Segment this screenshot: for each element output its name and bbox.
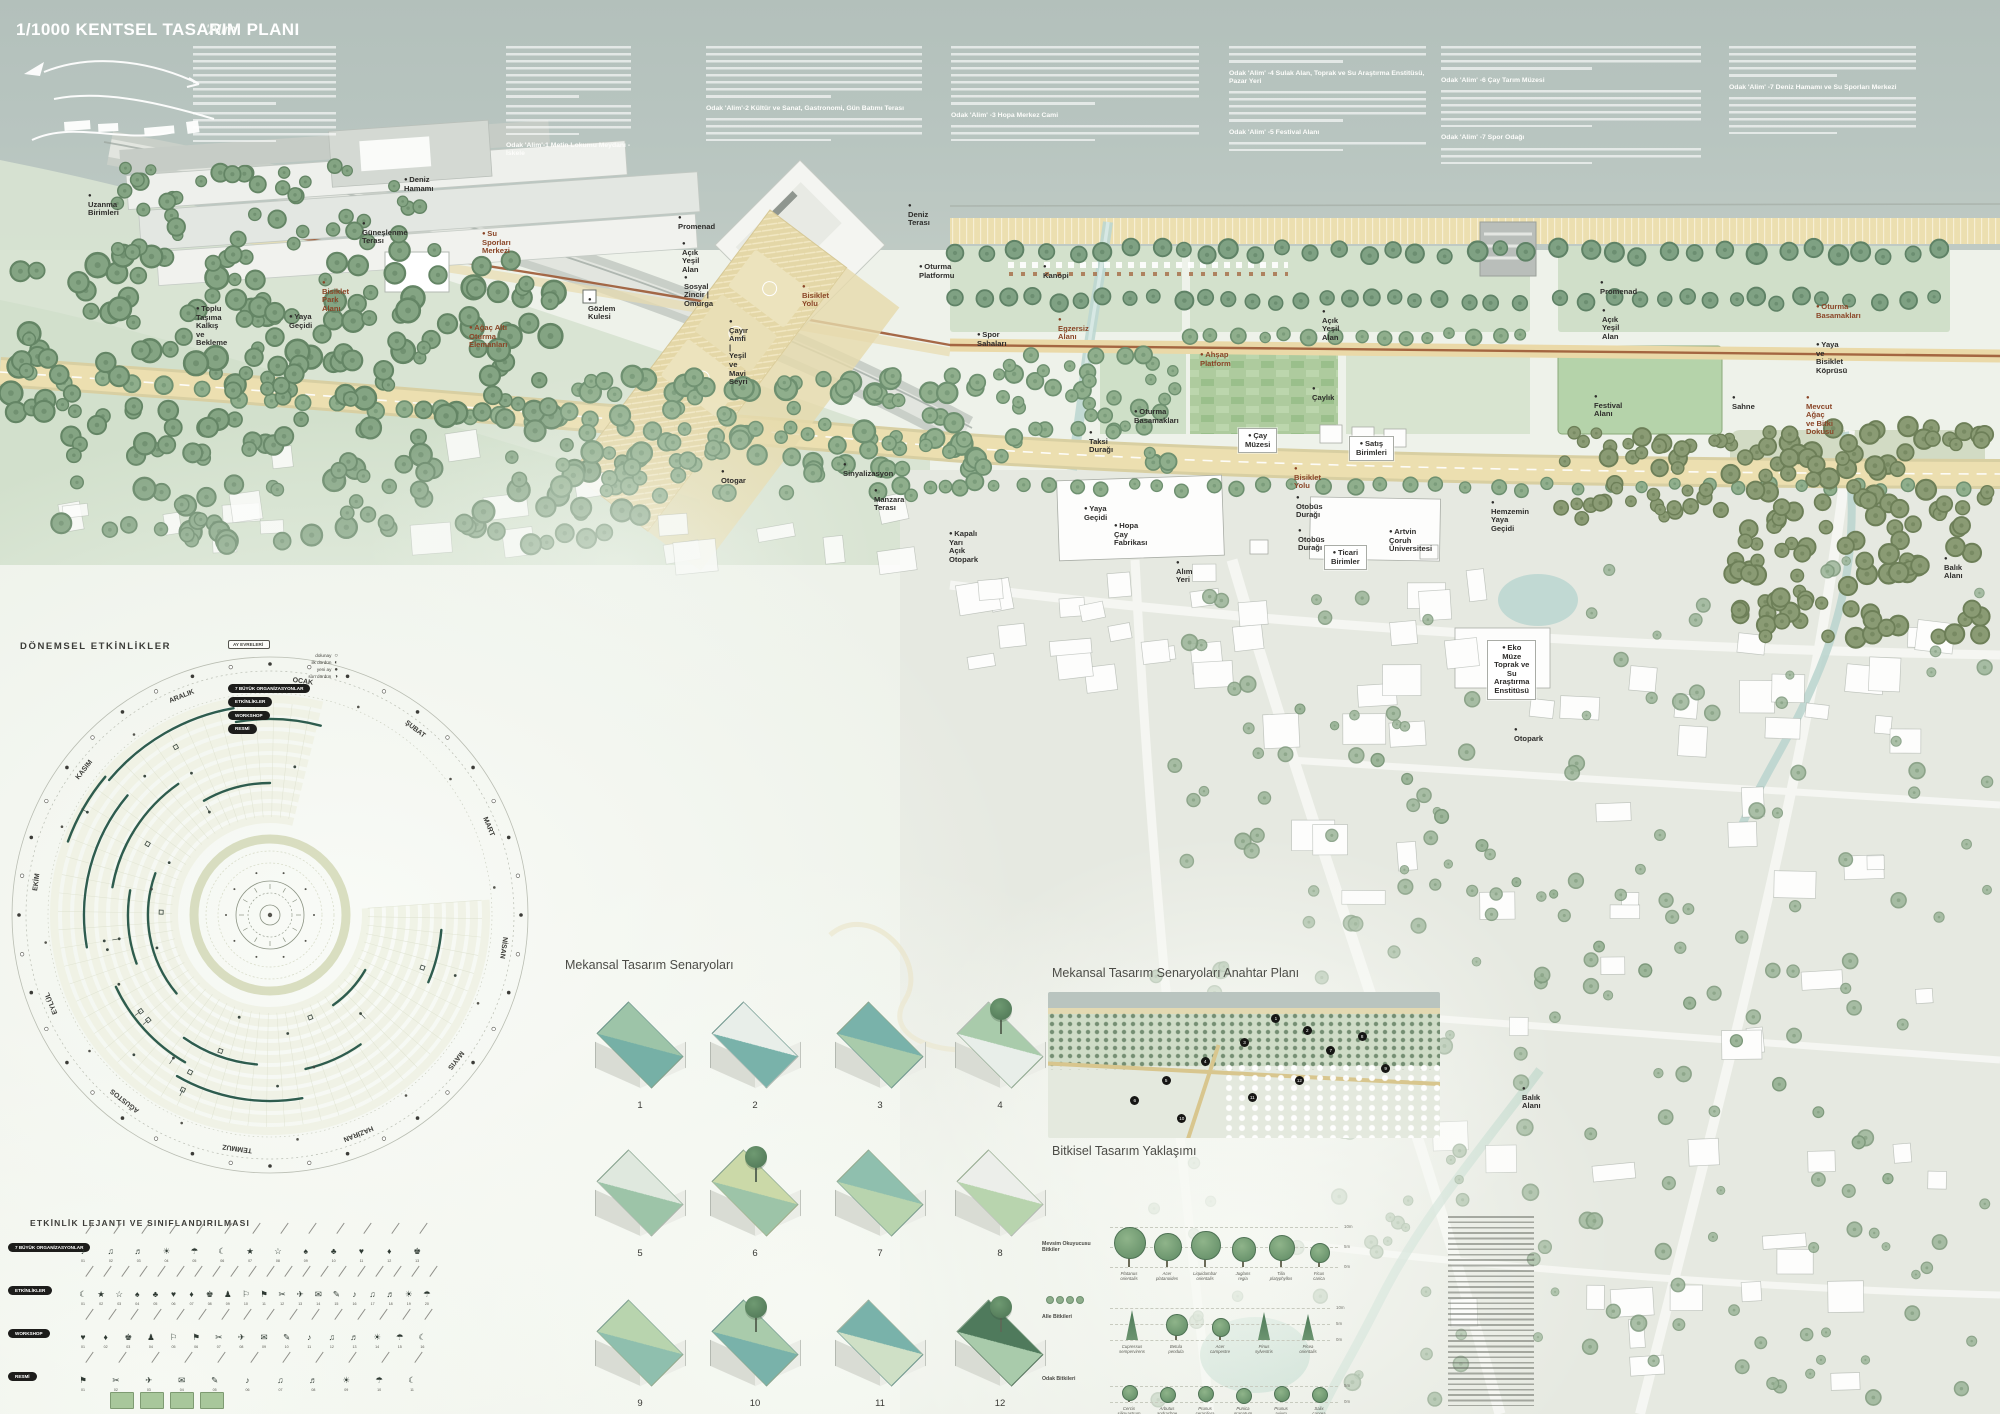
intro-column: Odak 'Alim' -3 Hopa Merkez Cami [951,46,1199,148]
legend-item-icon: ☀04 [158,1235,176,1263]
map-label: ● Yaya Geçidi [1084,505,1107,522]
legend-item-icon: ☀09 [337,1364,355,1392]
map-label: ● Otogar [721,468,746,485]
legend-item-icon: ☂05 [185,1235,203,1263]
legend-item-icon: ✉14 [309,1278,327,1306]
legend-item-icon: ♠09 [297,1235,315,1263]
scenario-number: 5 [582,1248,698,1259]
map-label: ● Çay Müzesi [1238,428,1277,453]
legend-item-icon: ✎10 [278,1321,296,1349]
map-label: ● Oturma Basamakları [1134,408,1179,425]
scenario-number: 2 [697,1100,813,1111]
scenario-number: 11 [822,1398,938,1409]
legend-row: ETKİNLİKLER☾01★02☆03♠04♣05♥06♦07♚08♟09⚐1… [8,1274,438,1314]
species-name: Salixcaprea [1299,1406,1339,1414]
legend-item-icon: ☾01 [74,1278,92,1306]
height-scale-label: 5m [1344,1383,1350,1388]
allee-icon [1046,1296,1084,1304]
species-name: Juglansregia [1223,1271,1263,1281]
legend-item-icon: ♬08 [304,1364,322,1392]
svg-text:NİSAN: NİSAN [498,937,509,960]
legend-item-icon: ✈03 [140,1364,158,1392]
legend-item-icon: ♥11 [352,1235,370,1263]
species-name: Prunusavium [1261,1406,1301,1414]
odak-heading: Odak 'Alim'-2 Kültür ve Sanat, Gastronom… [706,105,922,113]
map-label: ● Bisiklet Yolu [802,283,829,309]
moon-legend-item: dolunay○ [228,652,338,659]
odak-heading: Odak 'Alim' -7 Spor Odağı [1441,134,1701,142]
svg-text:ŞUBAT: ŞUBAT [404,719,427,739]
map-label: ● Açık Yeşil Alan [1322,308,1339,342]
species-tree-icon [1274,1386,1290,1402]
legend-row-category: WORKSHOP [8,1329,50,1338]
odak-heading: Odak 'Alim'-1 Metin Lokumu Meydanı - İsk… [506,142,631,158]
height-scale-label: 5m [1344,1244,1350,1249]
map-label: ● Otobüs Durağı [1296,494,1323,520]
species-tree-icon [1154,1233,1182,1261]
legend-item-icon: ♦12 [380,1235,398,1263]
species-name: Platanusorientalis [1109,1271,1149,1281]
keyplan-map: 123456789101112 [1048,992,1440,1138]
species-tree-icon [1269,1235,1295,1261]
map-label: ● Su Sporları Merkezi [482,230,511,256]
map-label: ● Festival Alanı [1594,393,1622,419]
map-label: ● Taksi Durağı [1089,429,1113,455]
legend-item-icon: ☾06 [213,1235,231,1263]
species-name: Prunusceracifera [1185,1406,1225,1414]
scenario-tile: 1 [582,996,698,1114]
keyplan-marker: 12 [1295,1076,1304,1085]
scenario-number: 3 [822,1100,938,1111]
scenario-tile: 6 [697,1144,813,1262]
intro-column: Odak 'Alim'-2 Kültür ve Sanat, Gastronom… [706,46,922,148]
svg-text:TEMMUZ: TEMMUZ [221,1143,252,1154]
legend-item-icon: ✎05 [206,1364,224,1392]
map-label: ● Otopark [1514,726,1543,743]
keyplan-marker: 11 [1248,1093,1257,1102]
scenario-number: 1 [582,1100,698,1111]
map-label: ● Promenad [678,214,715,231]
species-name: Cercissiliquastrum [1109,1406,1149,1414]
legend-item-icon: ♥01 [74,1321,92,1349]
map-label: ● Balık Alanı [1522,1085,1541,1111]
legend-item-icon: ♪01 [74,1235,92,1263]
poster-title: 1/1000 KENTSEL TASARIM PLANI [16,20,300,40]
keyplan-marker: 2 [1303,1026,1312,1035]
scenario-tile: 10 [697,1294,813,1412]
species-name: Acercampestre [1200,1344,1240,1354]
legend-item-icon: ♪06 [239,1364,257,1392]
height-scale-label: 0m [1344,1264,1350,1269]
planting-group-label: Odak Bitkileri [1042,1376,1106,1382]
planting-palette: Mevsim Okuyucusu Bitkiler10m5m0mPlatanus… [1040,1150,1560,1414]
svg-text:MART: MART [481,816,495,838]
calendar-category-pill: 7 BÜYÜK ORGANİZASYONLAR [228,684,310,693]
legend-item-icon: ✉04 [173,1364,191,1392]
legend-item-icon: ♬13 [346,1321,364,1349]
map-label: ● Manzara Terası [874,487,904,513]
keyplan-marker: 5 [1162,1076,1171,1085]
odak-heading: Odak 'Alim' -4 Sulak Alan, Toprak ve Su … [1229,70,1426,86]
height-scale-label: 0m [1336,1337,1342,1342]
map-label: ● Uzanma Birimleri [88,192,119,218]
intro-column: Odak 'Alim'-1 Metin Lokumu Meydanı - İsk… [506,46,631,164]
species-tree-icon [1160,1387,1176,1403]
species-name: Betulapendula [1156,1344,1196,1354]
keyplan-marker: 9 [1381,1064,1390,1073]
scenario-tile: 5 [582,1144,698,1262]
map-label: ● Ahşap Platform [1200,351,1231,368]
legend-row: WORKSHOP♥01♦02♚03♟04⚐05⚑06✂07✈08✉09✎10♪1… [8,1317,438,1357]
scenario-number: 4 [942,1100,1058,1111]
map-label: ● Açık Yeşil Alan [682,240,699,274]
keyplan-marker: 6 [1130,1096,1139,1105]
odak-heading: Odak 'Alim' -6 Çay Tarım Müzesi [1441,77,1701,85]
legend-item-icon: ✈08 [232,1321,250,1349]
map-label: ● Sahne [1732,394,1755,411]
svg-text:HAZİRAN: HAZİRAN [342,1124,374,1143]
legend-item-icon: ♪11 [300,1321,318,1349]
legend-item-icon: ☂20 [418,1278,436,1306]
legend-item-icon: ♚08 [201,1278,219,1306]
calendar-category-pill: WORKSHOP [228,711,270,720]
legend-item-icon: ♫17 [364,1278,382,1306]
scenarios-title: Mekansal Tasarım Senaryoları [565,958,734,972]
species-tree-icon [1302,1314,1314,1340]
svg-text:MAYIS: MAYIS [446,1049,465,1071]
legend-row: 7 BÜYÜK ORGANİZASYONLAR♪01♫02♬03☀04☂05☾0… [8,1231,438,1271]
species-name: Tiliaplatyphyllos [1261,1271,1301,1281]
planting-title: Bitkisel Tasarım Yaklaşımı [1052,1144,1197,1158]
legend-item-icon: ★02 [92,1278,110,1306]
moon-legend-item: ilk dördün◐ [228,659,338,666]
map-label: ● Eko Müze Toprak ve Su Araştırma Enstit… [1487,640,1536,700]
map-label: ● Oturma Basamakları [1816,303,1861,320]
map-label: ● Balık Alanı [1944,555,1963,581]
keyplan-title: Mekansal Tasarım Senaryoları Anahtar Pla… [1052,966,1299,980]
poster-subtitle: 'Alim' [206,21,239,37]
map-label: ● Oturma Platformu [919,263,954,280]
height-scale-label: 10m [1344,1224,1353,1229]
map-label: ● Çaylık [1312,385,1334,402]
legend-item-icon: ♫12 [323,1321,341,1349]
svg-text:ARALIK: ARALIK [168,688,195,704]
scenario-number: 10 [697,1398,813,1409]
poster-header: 1/1000 KENTSEL TASARIM PLANI 'Alim' Odak… [0,0,2000,150]
planting-group-label: Mevsim Okuyucusu Bitkiler [1042,1241,1106,1254]
keyplan-marker: 4 [1201,1057,1210,1066]
scenario-tile: 9 [582,1294,698,1412]
map-label: ● Yaya Geçidi [289,313,312,330]
urban-design-poster: ● Deniz Hamamı● Güneşlenme Terası● Su Sp… [0,0,2000,1414]
legend-item-icon: ☆08 [269,1235,287,1263]
keyplan-marker: 10 [1177,1114,1186,1123]
legend-item-icon: ✂12 [273,1278,291,1306]
species-list-smallprint [1448,1216,1534,1406]
height-scale-label: 10m [1336,1305,1345,1310]
svg-text:EKİM: EKİM [31,873,41,892]
intro-column: Odak 'Alim' -7 Deniz Hamamı ve Su Sporla… [1729,46,1916,141]
legend-item-icon: ★07 [241,1235,259,1263]
legend-item-icon: ♣05 [146,1278,164,1306]
legend-item-icon: ⚐10 [237,1278,255,1306]
map-label: ● Sosyal Zincir | Omurga [684,274,713,308]
legend-item-icon: ♚03 [119,1321,137,1349]
legend-item-icon: ⚑01 [74,1364,92,1392]
moon-legend-item: yeni ay● [228,666,338,673]
species-name: Pinussylvestris [1244,1344,1284,1354]
legend-item-icon: ♪16 [346,1278,364,1306]
map-label: ● Deniz Terası [908,202,930,228]
map-label: ● Ağaç Altı Oturma Elemanları [469,324,507,350]
legend-item-icon: ♥06 [165,1278,183,1306]
legend-item-icon: ✈13 [291,1278,309,1306]
map-label: ● Ticari Birimler [1324,545,1367,570]
scenario-number: 6 [697,1248,813,1259]
moon-legend-item: son dördün◑ [228,673,338,680]
legend-item-icon: ✂02 [107,1364,125,1392]
keyplan-marker: 3 [1240,1038,1249,1047]
map-label: ● Artvin Çoruh Üniversitesi [1389,528,1432,554]
legend-item-icon: ☀14 [368,1321,386,1349]
legend-item-icon: ♣10 [325,1235,343,1263]
species-tree-icon [1122,1385,1138,1401]
legend-item-icon: ♫02 [102,1235,120,1263]
species-name: Punicagranatum [1223,1406,1263,1414]
event-legend: ETKİNLİK LEJANTI VE SINIFLANDIRILMASI 7 … [8,1218,438,1400]
map-label: ● Hopa Çay Fabrikası [1114,522,1147,548]
legend-item-icon: ☾11 [403,1364,421,1392]
keyplan-marker: 8 [1358,1032,1367,1041]
species-tree-icon [1126,1310,1138,1340]
legend-item-icon: ☀19 [400,1278,418,1306]
map-label: ● Açık Yeşil Alan [1602,307,1619,341]
species-name: Piceaorientalis [1288,1344,1328,1354]
moon-legend-title: AY EVRELERİ [228,640,270,649]
map-label: ● Toplu Taşıma Kalkış ve Bekleme [196,305,227,348]
map-label: ● Kapalı Yarı Açık Otopark [949,530,978,564]
legend-item-icon: ⚐05 [165,1321,183,1349]
species-tree-icon [1114,1227,1146,1259]
legend-item-icon: ♟04 [142,1321,160,1349]
calendar-category-pill: RESMİ [228,724,257,733]
map-label: ● Egzersiz Alanı [1058,316,1089,342]
height-scale-label: 0m [1344,1399,1350,1404]
species-tree-icon [1191,1231,1220,1260]
species-tree-icon [1236,1388,1252,1404]
planting-group-label: Alle Bitkileri [1042,1314,1106,1320]
legend-item-icon: ✉09 [255,1321,273,1349]
odak-heading: Odak 'Alim' -3 Hopa Merkez Cami [951,112,1199,120]
scenario-tile: 2 [697,996,813,1114]
legend-item-icon: ☆03 [110,1278,128,1306]
species-tree-icon [1232,1237,1257,1262]
species-name: Acerplatanoides [1147,1271,1187,1281]
legend-item-icon: ⚑06 [187,1321,205,1349]
map-label: ● Çayır Amfi | Yeşil ve Mavi Seyri [729,318,748,387]
legend-item-icon: ✂07 [210,1321,228,1349]
legend-row-category: ETKİNLİKLER [8,1286,52,1295]
legend-item-icon: ♦02 [97,1321,115,1349]
map-label: ● Satış Birimleri [1349,436,1394,461]
map-label: ● Mevcut Ağaç ve Bitki Dokusu [1806,394,1834,437]
species-name: Liquidambarorientalis [1185,1271,1225,1281]
legend-item-icon: ♬18 [382,1278,400,1306]
species-tree-icon [1212,1318,1231,1337]
legend-item-icon: ♫07 [271,1364,289,1392]
legend-item-icon: ♦07 [183,1278,201,1306]
calendar-title: DÖNEMSEL ETKİNLİKLER [20,641,171,652]
map-label: ● Bisiklet Park Alanı [322,279,349,313]
height-scale-label: 5m [1336,1321,1342,1326]
calendar-category-pill: ETKİNLİKLER [228,697,272,706]
species-tree-icon [1310,1243,1330,1263]
map-label: ● Sinyalizasyon [843,461,893,478]
legend-swatches [110,1392,224,1409]
legend-item-icon: ♠04 [128,1278,146,1306]
scenario-number: 9 [582,1398,698,1409]
legend-item-icon: ♬03 [130,1235,148,1263]
legend-item-icon: ☂15 [391,1321,409,1349]
map-label: ● Deniz Hamamı [404,176,434,193]
legend-item-icon: ♚13 [408,1235,426,1263]
scenario-tile: 11 [822,1294,938,1412]
svg-text:EYLÜL: EYLÜL [42,991,59,1016]
svg-text:KASIM: KASIM [75,759,95,781]
odak-heading: Odak 'Alim' -5 Festival Alanı [1229,129,1426,137]
legend-item-icon: ☂10 [370,1364,388,1392]
scenario-tile: 4 [942,996,1058,1114]
scenario-tile: 7 [822,1144,938,1262]
map-label: ● Kanopi [1043,263,1069,280]
intro-column: Odak 'Alim' -6 Çay Tarım MüzesiOdak 'Ali… [1441,46,1701,171]
species-tree-icon [1312,1387,1328,1403]
map-label: ● Otobüs Durağı [1298,527,1325,553]
svg-text:AĞUSTOS: AĞUSTOS [108,1087,141,1116]
map-label: ● Bisiklet Yolu [1294,465,1321,491]
map-label: ● Güneşlenme Terası [362,220,408,246]
scenario-tile: 3 [822,996,938,1114]
legend-item-icon: ⚑11 [255,1278,273,1306]
scenario-number: 7 [822,1248,938,1259]
legend-item-icon: ♟09 [219,1278,237,1306]
map-label: ● Hemzemin Yaya Geçidi [1491,499,1529,533]
map-label: ● Alım Yeri [1176,559,1192,585]
species-tree-icon [1258,1312,1270,1340]
intro-column [193,46,336,149]
species-tree-icon [1166,1314,1188,1336]
map-label: ● Promenad [1600,279,1637,296]
intro-column: Odak 'Alim' -4 Sulak Alan, Toprak ve Su … [1229,46,1426,158]
map-label: ● Yaya ve Bisiklet Köprüsü [1816,341,1847,375]
map-label: ● Spor Sahaları [977,331,1007,348]
species-name: Cupressussempervirens [1112,1344,1152,1354]
calendar-legend: AY EVRELERİdolunay○ilk dördün◐yeni ay●so… [228,640,338,734]
map-label: ● Gözlem Kulesi [588,296,615,322]
legend-item-icon: ✎15 [327,1278,345,1306]
species-tree-icon [1198,1386,1214,1402]
odak-heading: Odak 'Alim' -7 Deniz Hamamı ve Su Sporla… [1729,84,1916,92]
legend-item-icon: ☾16 [413,1321,431,1349]
legend-row-category: RESMİ [8,1372,37,1381]
species-name: Arbutusandrachne [1147,1406,1187,1414]
species-name: Ficuscarica [1299,1271,1339,1281]
